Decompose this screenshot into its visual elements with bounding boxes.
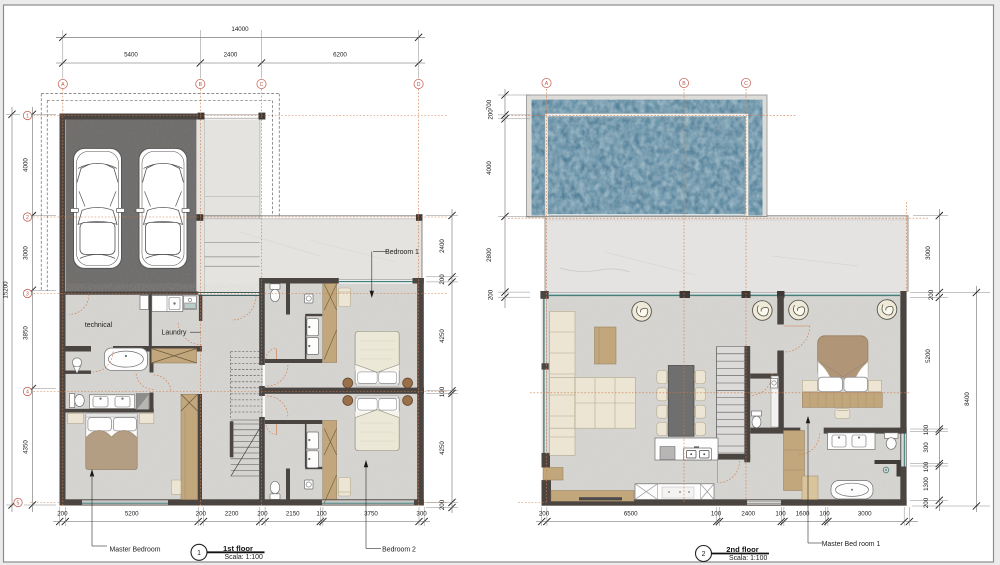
svg-text:technical: technical [85, 322, 113, 329]
svg-text:100: 100 [316, 511, 327, 518]
svg-text:2800: 2800 [486, 248, 493, 262]
svg-text:Scala: 1:100: Scala: 1:100 [729, 555, 767, 562]
svg-text:2400: 2400 [224, 52, 238, 59]
svg-text:200: 200 [488, 289, 495, 300]
svg-text:100: 100 [819, 511, 830, 518]
svg-text:2: 2 [26, 215, 29, 221]
svg-text:5200: 5200 [125, 511, 139, 518]
svg-text:8400: 8400 [964, 392, 971, 406]
svg-text:1: 1 [26, 113, 29, 119]
svg-text:Bedroom 1: Bedroom 1 [385, 249, 419, 256]
svg-text:4000: 4000 [486, 161, 493, 175]
svg-text:B: B [199, 82, 203, 88]
svg-text:Bedroom 2: Bedroom 2 [382, 547, 416, 554]
svg-text:100: 100 [775, 511, 786, 518]
svg-text:6500: 6500 [624, 511, 638, 518]
svg-text:D: D [417, 82, 421, 88]
svg-text:200: 200 [539, 511, 550, 518]
svg-text:3000: 3000 [23, 246, 30, 260]
svg-text:200: 200 [439, 274, 446, 285]
svg-text:200: 200 [928, 289, 935, 300]
svg-text:5400: 5400 [124, 52, 138, 59]
svg-text:C: C [260, 82, 264, 88]
svg-text:2: 2 [702, 551, 706, 558]
svg-text:3: 3 [26, 291, 29, 297]
svg-text:2400: 2400 [741, 511, 755, 518]
svg-text:Master Bedroom: Master Bedroom [110, 547, 161, 554]
svg-text:200: 200 [196, 511, 207, 518]
svg-text:100: 100 [439, 386, 446, 397]
svg-text:200: 200 [488, 109, 495, 120]
svg-text:5: 5 [17, 500, 20, 506]
svg-text:100: 100 [923, 424, 930, 435]
svg-text:6200: 6200 [333, 52, 347, 59]
svg-text:C: C [744, 81, 748, 87]
svg-text:A: A [61, 82, 65, 88]
svg-text:2150: 2150 [286, 511, 300, 518]
svg-text:700: 700 [486, 99, 493, 110]
svg-text:14000: 14000 [231, 26, 249, 33]
svg-text:4350: 4350 [23, 440, 30, 454]
svg-text:B: B [682, 81, 686, 87]
svg-text:5200: 5200 [925, 349, 932, 363]
svg-text:Scala: 1:100: Scala: 1:100 [225, 554, 263, 561]
svg-text:1: 1 [197, 550, 201, 557]
svg-text:300: 300 [416, 511, 427, 518]
svg-text:2400: 2400 [439, 239, 446, 253]
svg-text:3000: 3000 [925, 246, 932, 260]
svg-text:200: 200 [57, 511, 68, 518]
svg-text:4000: 4000 [23, 158, 30, 172]
svg-text:2200: 2200 [225, 511, 239, 518]
svg-text:300: 300 [923, 442, 930, 453]
svg-text:200: 200 [257, 511, 268, 518]
svg-text:Master Bed room 1: Master Bed room 1 [822, 541, 881, 548]
svg-text:200: 200 [439, 499, 446, 510]
svg-text:100: 100 [923, 461, 930, 472]
svg-text:15200: 15200 [3, 281, 10, 299]
svg-text:100: 100 [711, 511, 722, 518]
svg-text:3000: 3000 [858, 511, 872, 518]
svg-text:4250: 4250 [439, 441, 446, 455]
svg-text:3850: 3850 [23, 326, 30, 340]
svg-text:4: 4 [26, 389, 29, 395]
svg-text:4250: 4250 [439, 329, 446, 343]
svg-text:A: A [545, 81, 549, 87]
svg-text:1300: 1300 [923, 477, 930, 491]
svg-text:200: 200 [923, 497, 930, 508]
